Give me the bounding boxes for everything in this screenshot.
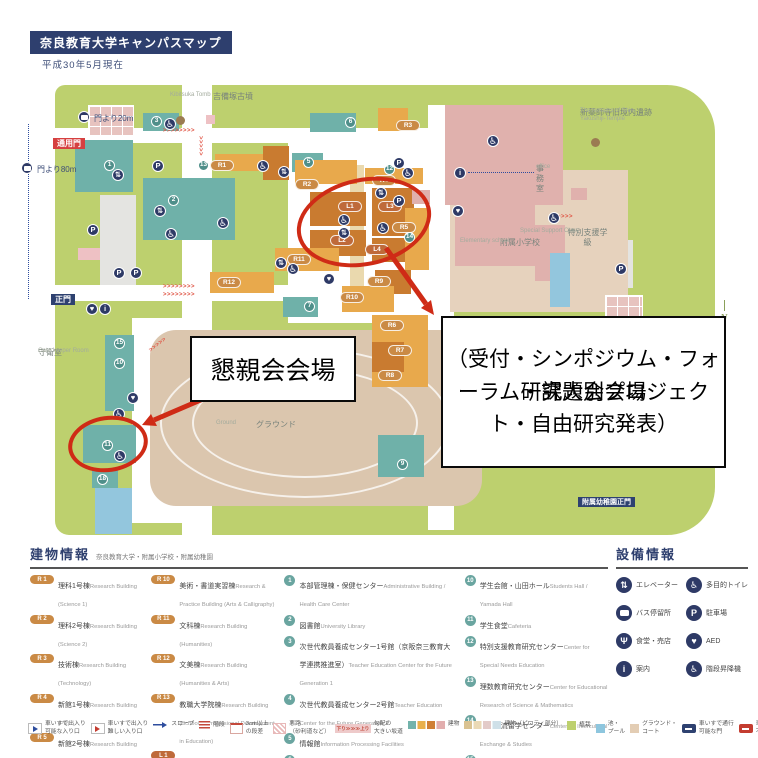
facility-icon: ♥: [686, 633, 702, 649]
legend-label-line1: 3cm以上: [246, 721, 269, 727]
ground-en: Ground: [216, 420, 236, 428]
wheelchair-icon: ♿: [164, 118, 176, 130]
building-name-jp: 本部管理棟・保健センター: [299, 583, 383, 590]
building-name-jp: 図書館: [299, 623, 320, 630]
building-list-item: R 11 文科棟Research Building (Humanities): [151, 615, 276, 651]
building-number-badge: 1: [284, 575, 295, 586]
circle-9: 9: [397, 459, 408, 470]
building-badge: R 10: [151, 575, 175, 584]
legend-label-line2: （砂利道など）: [289, 729, 330, 735]
aed-icon: ♥: [452, 205, 464, 217]
facility-label: バス停留所: [636, 608, 671, 618]
legend-item: 車いすで出入り難しい入り口: [91, 721, 149, 736]
parking-icon: P: [87, 224, 99, 236]
circle-7: 7: [304, 301, 315, 312]
building-number-badge: 6: [284, 755, 295, 758]
building-number-badge: 10: [465, 575, 476, 586]
badge-r3: R3: [396, 120, 420, 131]
legend-label-line2: 大きい坂道: [374, 729, 403, 735]
slope-chevrons: >>>>>: [197, 136, 203, 156]
building-name-en: Cafeteria: [508, 624, 532, 630]
building: [571, 188, 587, 200]
circle-5: 5: [303, 157, 314, 168]
building-name-jp: 情報館: [299, 741, 320, 748]
map-legend-strip: 車いすで出入り可能な入り口 車いすで出入り難しい入り口 スロープ 階段 3cm以…: [28, 721, 740, 736]
kindergarten-gate-tag: 附属幼稚園正門: [578, 497, 635, 507]
badge-r7: R7: [388, 345, 412, 356]
legend-label-line2: 可能な入り口: [45, 729, 80, 735]
party-venue-label: 懇親会会場: [210, 351, 335, 387]
slope-chevrons: >>>>>>>>: [163, 284, 195, 290]
circle-13: 13: [198, 160, 209, 171]
kibitsuka-en: Kibitsuka Tomb: [170, 92, 211, 100]
facility-label: 駐車場: [706, 608, 727, 618]
elevator-icon: ⇅: [275, 257, 287, 269]
conference-venue-callout: 研究大会会場 （受付・シンポジウム・フォーラム・課題別プロジェクト・自由研究発表…: [441, 316, 726, 468]
building-name-jp: 文科棟: [179, 623, 200, 630]
building-badge: R 4: [30, 694, 54, 703]
legend-item: 植栽: [567, 721, 591, 730]
parking-icon: P: [130, 267, 142, 279]
legend-swatch-icon: [408, 721, 445, 729]
facility-label: AED: [706, 638, 720, 645]
facility-item: バス停留所: [616, 605, 686, 621]
building-name-en: University Library: [320, 624, 365, 630]
facility-info-title: 設備情報: [616, 544, 676, 563]
facility-label: エレベーター: [636, 580, 678, 590]
facility-grid: ⇅ エレベーター ♿ 多目的トイレ バス停留所 P 駐車場 Ψ 食堂・売店 ♥ …: [616, 577, 748, 677]
campus-map-page: 奈良教育大学キャンパスマップ 平成30年5月現在: [0, 0, 758, 758]
conference-venue-body: （受付・シンポジウム・フォーラム・課題別プロジェクト・自由研究発表）: [443, 343, 724, 441]
service-gate-tag: 通用門: [53, 138, 85, 149]
facility-item: P 駐車場: [686, 605, 748, 621]
building-name-jp: 理科2号棟: [58, 623, 90, 630]
building-name-jp: 特別支援教育研究センター: [480, 644, 564, 651]
circle-2: 2: [168, 195, 179, 206]
building-number-badge: 4: [284, 694, 295, 705]
building-number-badge: 15: [465, 755, 476, 758]
legend-label-line1: 車いすで通行: [699, 721, 734, 727]
building-number-badge: 12: [465, 636, 476, 647]
circle-10: 10: [114, 358, 125, 369]
building-name-en: Information Processing Facilities: [320, 742, 403, 748]
facility-item: ♿ 階段昇降機: [686, 661, 748, 677]
building-number-badge: 2: [284, 615, 295, 626]
legend-item: 車いすで通行可能な門: [682, 721, 734, 736]
building-badge: R 2: [30, 615, 54, 624]
legend-item: 建物: [408, 721, 460, 729]
building-list-item: R 5 新館2号棟Research Building (Mathematics …: [30, 733, 143, 758]
building-number-badge: 3: [284, 636, 295, 647]
legend-item: 車いすで出入り可能な入り口: [28, 721, 86, 736]
building-list-item: 12 特別支援教育研究センターCenter for Special Needs …: [465, 636, 608, 672]
legend-item: 悪路（砂利道など）: [273, 721, 330, 736]
building-name-jp: 教職大学院棟: [179, 702, 221, 709]
legend-label-line2: 難しい入り口: [108, 729, 143, 735]
landmark: [206, 115, 215, 124]
building-name-jp: 技術棟: [58, 662, 79, 669]
legend-label-line2: プール: [608, 729, 625, 735]
building-name-jp: 学生食堂: [480, 623, 508, 630]
party-venue-callout: 懇親会会場: [190, 336, 356, 402]
building-name-jp: 学生会館・山田ホール: [480, 583, 550, 590]
facility-label: 多目的トイレ: [706, 580, 748, 590]
parking-icon: P: [113, 267, 125, 279]
facility-item: ♥ AED: [686, 633, 748, 649]
elevator-icon: ⇅: [154, 205, 166, 217]
wheelchair-icon: ♿: [217, 217, 229, 229]
legend-swatch-icon: [630, 724, 639, 733]
walk-path: [28, 124, 29, 299]
building-9-gymnasium: [378, 435, 424, 477]
legend-swatch-icon: [153, 721, 168, 729]
legend-label-line1: 池・: [608, 721, 620, 727]
building-name-jp: 文美棟: [179, 662, 200, 669]
building-name-jp: 次世代教員養成センター2号館: [299, 702, 394, 709]
legend-item: スロープ: [153, 721, 194, 729]
facility-item: Ψ 食堂・売店: [616, 633, 686, 649]
circle-18: 18: [97, 474, 108, 485]
divider: [616, 567, 748, 569]
facility-icon: ♿: [686, 577, 702, 593]
building-list-item: 1 本部管理棟・保健センターAdministrative Building / …: [284, 575, 456, 611]
facility-item: ⇅ エレベーター: [616, 577, 686, 593]
legend-swatch-icon: 下り≫≫≫上り: [335, 724, 371, 733]
legend-label-line1: 車いすで出入り: [108, 721, 149, 727]
map-date: 平成30年5月現在: [42, 57, 124, 71]
legend-swatch-icon: [28, 723, 42, 734]
building-list-item: 6 教育資料館Museum for Historical Materials o…: [284, 755, 456, 758]
legend-label-line1: グラウンド・: [642, 721, 677, 727]
facility-icon: [616, 605, 632, 621]
kibitsuka-jp: 吉備塚古墳: [213, 92, 253, 102]
info-icon: i: [454, 167, 466, 179]
facility-icon: ♿: [686, 661, 702, 677]
building-name-jp: 理数教育研究センター: [480, 684, 550, 691]
facility-item: i 案内: [616, 661, 686, 677]
building-name-jp: 美術・書道実習棟: [179, 583, 235, 590]
badge-r2: R2: [295, 179, 319, 190]
legend-label-line1: 植栽: [579, 722, 591, 728]
wheelchair-icon: ♿: [487, 135, 499, 147]
building-list-item: R 12 文美棟Research Building (Humanities & …: [151, 654, 276, 690]
wheelchair-icon: ♿: [287, 263, 299, 275]
parking-icon: P: [152, 160, 164, 172]
bus-icon: [21, 162, 33, 174]
legend-label-line2: 可能な門: [699, 729, 722, 735]
elevator-icon: ⇅: [278, 166, 290, 178]
legend-swatch-icon: [567, 721, 576, 730]
building-list-item: 15 寧楽館Neirakukan Hall: [465, 755, 608, 758]
legend-label-line1: 悪路: [289, 721, 301, 727]
circle-15: 15: [114, 338, 125, 349]
legend-swatch-icon: [91, 723, 105, 734]
shinyakushiji-en: The remains of Shin-Yakushiji-Temple: [580, 108, 650, 123]
legend-swatch-icon: [273, 723, 286, 734]
legend-item: 池・プール: [596, 721, 625, 736]
legend-label-line1: 階段: [213, 722, 225, 728]
legend-swatch-icon: [682, 724, 696, 733]
distance-80m: 門より80m: [37, 164, 76, 175]
badge-r10: R10: [340, 292, 364, 303]
parking-icon: P: [615, 263, 627, 275]
building-list-item: 10 学生会館・山田ホールStudents Hall / Yamada Hall: [465, 575, 608, 611]
legend-item: 階段: [199, 721, 225, 730]
support-en: Special Support Class: [520, 228, 579, 236]
facility-icon: ⇅: [616, 577, 632, 593]
legend-swatch-icon: [230, 723, 243, 734]
legend-label-line1: 建物（ピロティ部分）: [504, 721, 562, 727]
facility-label: 案内: [636, 664, 650, 674]
building-name-jp: 新館2号棟: [58, 741, 90, 748]
legend-label-line1: スロープ: [171, 721, 194, 727]
facility-item: ♿ 多目的トイレ: [686, 577, 748, 593]
legend-label-line1: 車いすで出入り: [45, 721, 86, 727]
building-number-badge: 11: [465, 615, 476, 626]
building-info-subtitle: 奈良教育大学・附属小学校・附属幼稚園: [96, 554, 213, 561]
divider: [30, 567, 608, 569]
legend-swatch-icon: [464, 721, 501, 729]
aed-icon: ♥: [323, 273, 335, 285]
legend-item: 車いすで通行不可能な門: [739, 721, 758, 736]
building-list-item: 11 学生食堂Cafeteria: [465, 615, 608, 633]
building-list-item: 2 図書館University Library: [284, 615, 456, 633]
ground-jp: グラウンド: [256, 420, 296, 430]
office-leader-line: [468, 172, 534, 173]
pool: [550, 253, 570, 307]
info-icon: i: [99, 303, 111, 315]
aed-icon: ♥: [86, 303, 98, 315]
office-en: office: [536, 164, 550, 172]
legend-item: 建物（ピロティ部分）: [464, 721, 562, 729]
building-badge: R 1: [30, 575, 54, 584]
facility-icon: i: [616, 661, 632, 677]
structure: [78, 248, 100, 260]
building-elementary-school: [455, 178, 535, 266]
conference-arrow: [378, 240, 448, 328]
building-badge: R 13: [151, 694, 175, 703]
building-list-item: R 1 理科1号棟Research Building (Science 1): [30, 575, 143, 611]
page-title: 奈良教育大学キャンパスマップ: [30, 31, 232, 54]
elevator-icon: ⇅: [112, 169, 124, 181]
legend-label-line2: コート: [642, 729, 659, 735]
main-gate-tag: 正門: [51, 294, 75, 305]
building-list-item: R 3 技術棟Research Building (Technology): [30, 654, 143, 690]
facility-label: 階段昇降機: [706, 664, 741, 674]
building-badge: R 12: [151, 654, 175, 663]
circle-3: 3: [151, 116, 162, 127]
legend-item: 3cm以上の段差: [230, 721, 269, 736]
building-list-item: R 2 理科2号棟Research Building (Science 2): [30, 615, 143, 651]
bus-icon: [78, 111, 90, 123]
pool: [95, 488, 132, 534]
building-badge: R 3: [30, 654, 54, 663]
building-badge: L 1: [151, 751, 175, 758]
legend-item: グラウンド・コート: [630, 721, 677, 736]
legend-swatch-icon: [199, 721, 210, 730]
gatekeeper-en: Gate keeper Room: [38, 348, 89, 356]
building-list-item: 3 次世代教員養成センター1号館（京阪奈三教育大学連携推進室）Teacher E…: [284, 636, 456, 690]
temple-dot: [591, 138, 600, 147]
facility-icon: Ψ: [616, 633, 632, 649]
building-list-item: L 1 講義1号棟Lecture Building 1: [151, 751, 276, 758]
facility-icon: P: [686, 605, 702, 621]
building-name-jp: 新館1号棟: [58, 702, 90, 709]
building-badge: R 11: [151, 615, 175, 624]
building-name-jp: 理科1号棟: [58, 583, 90, 590]
distance-20m: 門より20m: [94, 113, 133, 124]
elementary-en: Elementary school: [460, 238, 509, 246]
building-number-badge: 13: [465, 676, 476, 687]
campus-map: >>>>>>>> >>>>>>>> >>>>>>>> >>>>> >>>>> >…: [20, 80, 735, 540]
facility-label: 食堂・売店: [636, 636, 671, 646]
legend-label-line1: 勾配の: [374, 721, 391, 727]
wheelchair-icon: ♿: [257, 160, 269, 172]
legend-label-line2: の段差: [246, 729, 263, 735]
badge-r8: R8: [378, 370, 402, 381]
building-list-item: 13 理数教育研究センターCenter for Educational Rese…: [465, 676, 608, 712]
legend-item: 下り≫≫≫上り 勾配の大きい坂道: [335, 721, 403, 736]
wheelchair-icon: ♿: [402, 167, 414, 179]
legend-label-line1: 建物: [448, 721, 460, 727]
wheelchair-icon: ♿: [165, 228, 177, 240]
badge-r1: R1: [210, 160, 234, 171]
building-list-item: R 10 美術・書道実習棟Research & Practice Buildin…: [151, 575, 276, 611]
legend-swatch-icon: [739, 724, 753, 733]
circle-6: 6: [345, 117, 356, 128]
badge-r12: R12: [217, 277, 241, 288]
facility-info-section: 設備情報 ⇅ エレベーター ♿ 多目的トイレ バス停留所 P 駐車場 Ψ 食堂・…: [616, 544, 748, 677]
legend-swatch-icon: [596, 724, 605, 733]
wheelchair-icon: ♿: [548, 212, 560, 224]
slope-chevrons: >>>>>>>>: [163, 292, 195, 298]
building-info-title: 建物情報: [30, 544, 90, 563]
tomb-dot: [176, 116, 185, 125]
